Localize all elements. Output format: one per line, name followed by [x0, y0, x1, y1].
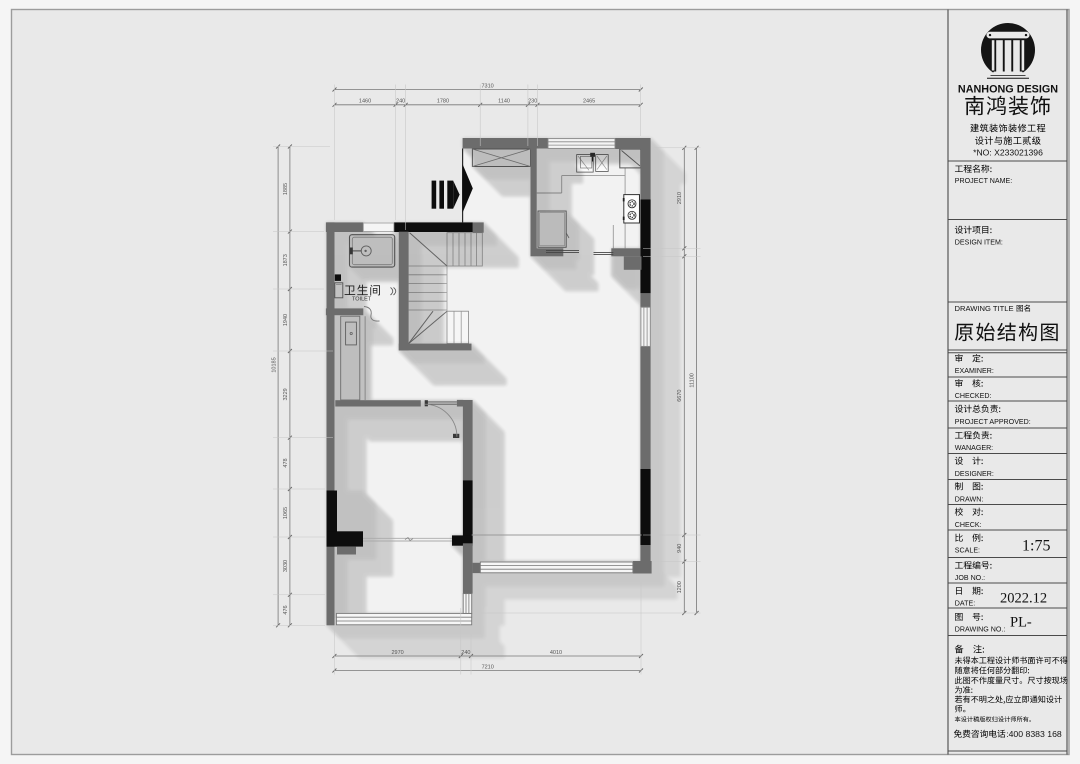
svg-text:PROJECT NAME:: PROJECT NAME: — [955, 177, 1012, 185]
svg-text:478: 478 — [283, 458, 289, 467]
svg-text:1873: 1873 — [283, 254, 289, 266]
svg-text:WANAGER:: WANAGER: — [955, 444, 993, 452]
svg-text:1200: 1200 — [677, 581, 683, 593]
svg-text:1885: 1885 — [283, 183, 289, 195]
svg-text:TOILET: TOILET — [352, 297, 372, 303]
svg-text:4010: 4010 — [550, 650, 562, 656]
svg-text:10185: 10185 — [271, 357, 277, 372]
svg-text:240: 240 — [396, 99, 405, 105]
svg-text:7310: 7310 — [481, 83, 493, 89]
svg-text:1780: 1780 — [437, 99, 449, 105]
svg-text:940: 940 — [677, 544, 683, 553]
svg-text:*NO: X233021396: *NO: X233021396 — [973, 148, 1043, 158]
svg-text:240: 240 — [461, 650, 470, 656]
svg-text:SCALE:: SCALE: — [955, 547, 980, 555]
svg-text:230: 230 — [528, 99, 537, 105]
svg-text:2465: 2465 — [583, 99, 595, 105]
svg-text:3030: 3030 — [283, 560, 289, 572]
svg-text:3229: 3229 — [283, 388, 289, 400]
svg-text:1:75: 1:75 — [1022, 538, 1050, 555]
svg-text:JOB NO.:: JOB NO.: — [955, 574, 985, 582]
svg-text:1140: 1140 — [498, 99, 510, 105]
svg-text:EXAMINER:: EXAMINER: — [955, 367, 994, 375]
svg-text::400 8383 168: :400 8383 168 — [1006, 729, 1062, 739]
svg-text:DESIGN ITEM:: DESIGN ITEM: — [955, 239, 1003, 247]
svg-text:1065: 1065 — [283, 507, 289, 519]
svg-text:2910: 2910 — [677, 192, 683, 204]
svg-text:DRAWN:: DRAWN: — [955, 496, 984, 504]
svg-text:1940: 1940 — [283, 314, 289, 326]
svg-text:6670: 6670 — [677, 390, 683, 402]
svg-text:11100: 11100 — [689, 373, 695, 387]
svg-text:CHECK:: CHECK: — [955, 521, 982, 529]
svg-text:1460: 1460 — [359, 99, 371, 105]
svg-text:2970: 2970 — [391, 650, 403, 656]
svg-text:NANHONG DESIGN: NANHONG DESIGN — [958, 84, 1058, 96]
svg-text:DRAWING NO.:: DRAWING NO.: — [955, 626, 1006, 634]
svg-text:2022.12: 2022.12 — [1000, 591, 1047, 607]
svg-text:DATE:: DATE: — [955, 600, 975, 608]
svg-text:DRAWING TITLE: DRAWING TITLE — [955, 304, 1014, 313]
svg-text:7210: 7210 — [482, 664, 494, 670]
svg-text:PL-: PL- — [1010, 615, 1032, 631]
svg-text:476: 476 — [283, 605, 289, 614]
svg-text:DESIGNER:: DESIGNER: — [955, 470, 994, 478]
svg-text:CHECKED:: CHECKED: — [955, 392, 992, 400]
svg-text:PROJECT APPROVED:: PROJECT APPROVED: — [955, 418, 1031, 426]
